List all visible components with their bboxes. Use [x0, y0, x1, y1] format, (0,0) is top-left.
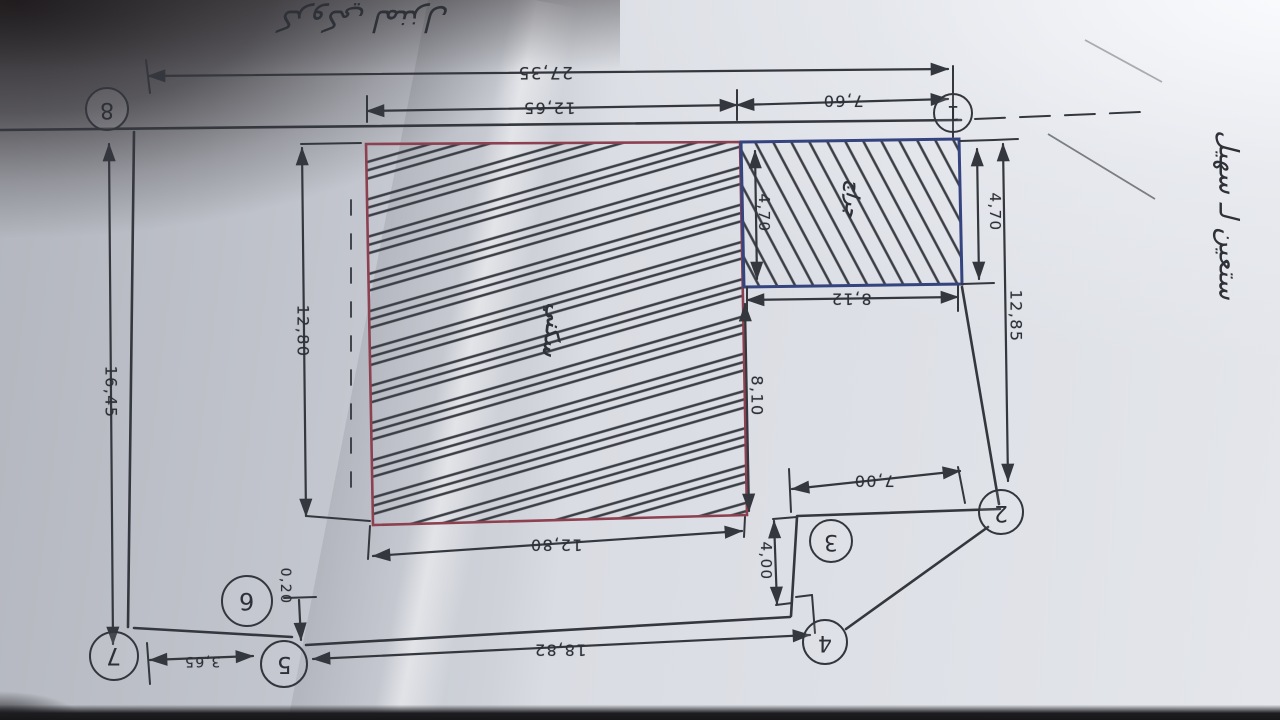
vertex-marker-8: 8 [85, 87, 129, 131]
dim-building-height-left-label: 12,80 [294, 305, 313, 358]
plan-drawing [0, 0, 1280, 720]
dim-notch-width-label: 7,00 [853, 472, 894, 491]
dim-building-right-lower-label: 8,10 [748, 375, 767, 416]
dim-building-bottom-width-label: 12,80 [530, 536, 583, 555]
vertex-number-2: 2 [994, 500, 1008, 525]
vertex-number-5: 5 [277, 651, 292, 677]
vertex-number-6: 6 [239, 587, 254, 615]
vertex-number-4: 4 [818, 630, 832, 655]
dim-annex-bottom-width-label: 8,12 [830, 290, 871, 309]
dim-small-offset-label: 0,20 [277, 568, 293, 605]
dim-left-outer-height-label: 16,45 [102, 366, 121, 419]
vertex-marker-7: 7 [89, 631, 139, 681]
dim-annex-height-inner-label: 4,70 [755, 194, 773, 233]
top-handwriting-note: كروكي لمنزل [281, 3, 449, 38]
vertex-number-3: 3 [824, 529, 838, 554]
vertex-marker-6: 6 [221, 575, 273, 627]
vertex-marker-1: 1 [933, 93, 973, 133]
dim-right-outer-height-label: 12,85 [1007, 290, 1026, 343]
vertex-number-1: 1 [947, 101, 960, 125]
vertex-marker-5: 5 [260, 640, 308, 688]
dim-bottom-boundary-length-label: 18,82 [534, 641, 587, 660]
vertex-number-7: 7 [106, 642, 121, 670]
dim-annex-width-label: 7,60 [822, 92, 863, 111]
annex-label: جراج [840, 179, 864, 218]
dim-bottom-left-offset-label: 3,65 [184, 653, 221, 669]
dim-notch-height-label: 4,00 [757, 542, 775, 581]
photographed-survey-sketch: 27,35 12,65 7,60 16,45 12,80 4,70 4,70 1… [0, 0, 1280, 720]
dim-building-width-label: 12,65 [523, 99, 576, 118]
dim-total-width-label: 27,35 [517, 62, 573, 82]
vertex-marker-3: 3 [809, 519, 853, 563]
side-handwriting-note: ستعين لـ سهيل [1213, 130, 1244, 299]
vertex-marker-4: 4 [802, 619, 848, 665]
vertex-marker-2: 2 [978, 489, 1024, 535]
pencil-marks [1048, 40, 1162, 199]
vertex-number-8: 8 [100, 97, 114, 122]
dim-annex-height-right-label: 4,70 [986, 193, 1004, 232]
